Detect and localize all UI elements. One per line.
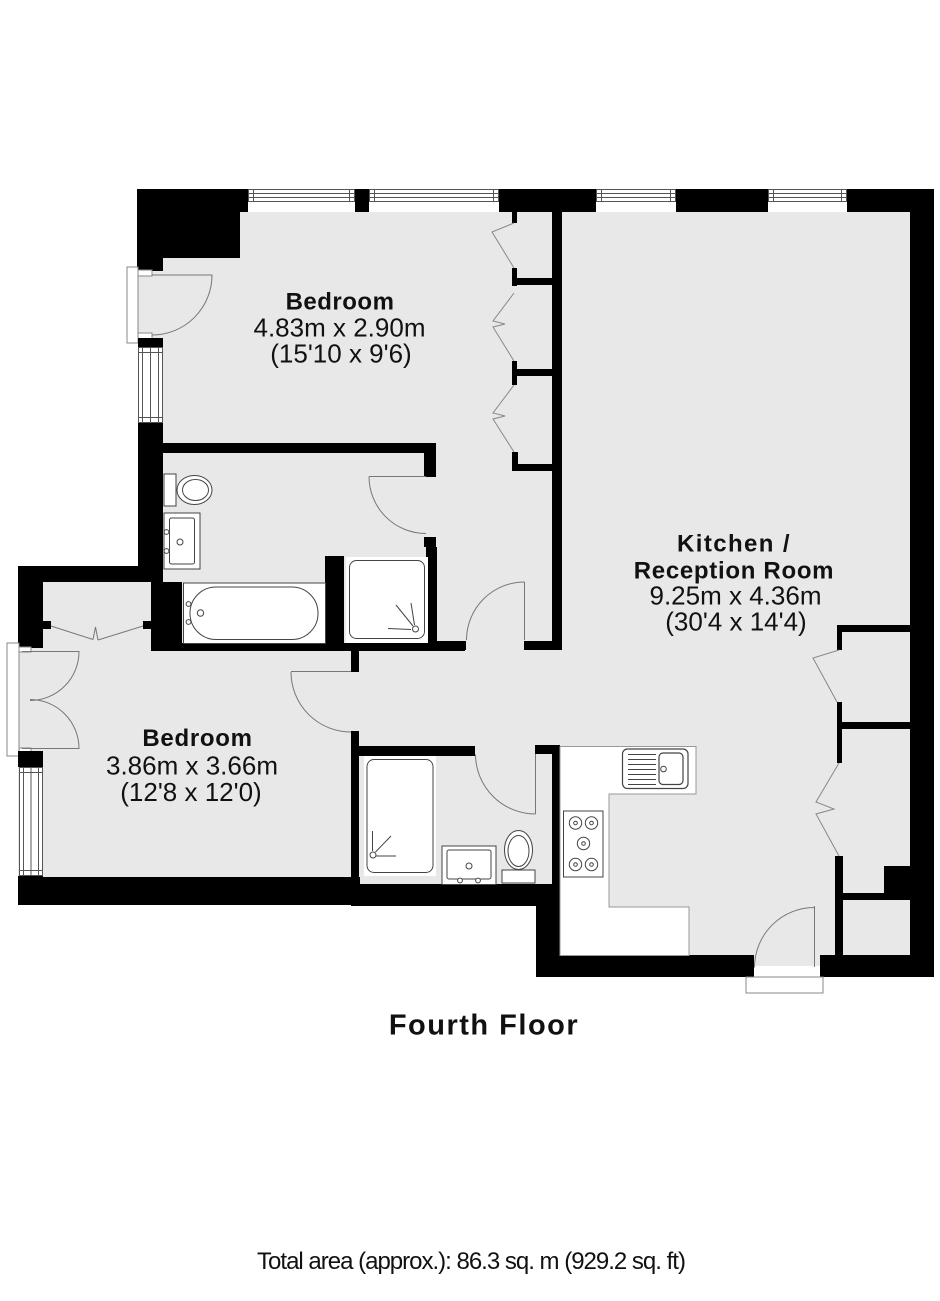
svg-text:Total area (approx.): 86.3 sq.: Total area (approx.): 86.3 sq. m (929.2 …	[257, 1248, 685, 1275]
svg-text:(30'4 x 14'4): (30'4 x 14'4)	[665, 606, 806, 636]
svg-text:Kitchen /: Kitchen /	[677, 531, 791, 558]
svg-text:3.86m x 3.66m: 3.86m x 3.66m	[106, 750, 278, 780]
svg-text:(12'8 x 12'0): (12'8 x 12'0)	[120, 777, 261, 807]
svg-text:(15'10 x 9'6): (15'10 x 9'6)	[270, 338, 411, 368]
svg-text:Fourth Floor: Fourth Floor	[389, 1010, 579, 1042]
svg-text:Bedroom: Bedroom	[142, 725, 252, 752]
